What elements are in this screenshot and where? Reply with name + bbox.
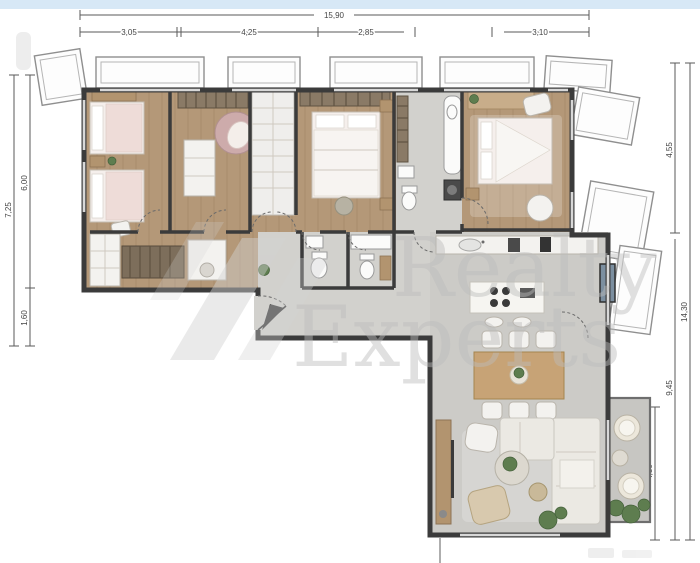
pouf: [335, 197, 353, 215]
plant-icon: [108, 157, 116, 165]
bay-window-icon: [228, 57, 300, 88]
dim-top-seg2-label: 4,25: [241, 28, 257, 37]
watermark-line2: Experts: [292, 288, 621, 386]
shower-tray: [351, 235, 391, 249]
watermark-fragment: [588, 548, 652, 558]
dresser: [184, 140, 215, 196]
dim-left-seg2-label: 1,60: [20, 310, 29, 326]
dimension-left: 7,25 6,00 1,60: [4, 75, 35, 346]
bay-window-icon: [330, 57, 422, 88]
dim-top-seg1-label: 3,05: [121, 28, 137, 37]
dim-right-seg2-label: 9,45: [665, 380, 674, 396]
bay-window-icon: [96, 57, 204, 88]
armchair: [527, 195, 553, 221]
dim-left-total-label: 7,25: [4, 202, 13, 218]
dim-top-total-label: 15,90: [324, 11, 345, 20]
chair: [482, 402, 502, 419]
washer-icon: [444, 180, 461, 200]
nightstand: [380, 100, 393, 112]
dim-right-total-label: 14,30: [680, 301, 689, 322]
plant-icon: [622, 505, 640, 523]
tub-drain: [447, 105, 457, 119]
plant-icon: [470, 95, 479, 104]
plant-icon: [638, 499, 650, 511]
wardrobe-closet: [252, 92, 294, 215]
nightstand: [90, 156, 105, 167]
dimension-top-segments: 3,05 4,25 2,85 3,10: [80, 27, 589, 37]
cabinet: [380, 256, 391, 280]
bay-window-icon: [440, 57, 534, 88]
shelf: [92, 92, 136, 101]
floor-plan-canvas: 15,90 3,05 4,25 2,85 3,10 7,25 6,00 1,60…: [0, 0, 700, 563]
chair: [509, 402, 529, 419]
tv-console: [436, 420, 451, 524]
toilet-icon: [360, 254, 374, 279]
bed-icon: [312, 112, 380, 198]
plant-icon: [503, 457, 517, 471]
armchair: [464, 422, 499, 454]
nightstand: [380, 198, 393, 210]
sink-icon: [306, 236, 323, 248]
bed-icon: [90, 102, 144, 154]
watermark-fragment: [16, 32, 31, 70]
wicker-chair-icon: [614, 415, 640, 441]
plant-icon: [555, 507, 567, 519]
side-table: [612, 450, 628, 466]
wardrobe-icon: [178, 92, 248, 108]
plant-icon: [539, 511, 557, 529]
bed-icon: [90, 170, 144, 222]
chair: [536, 402, 556, 419]
cabinet: [90, 234, 120, 286]
dimension-top-total: 15,90: [80, 10, 589, 20]
stool: [200, 263, 214, 277]
top-accent-bar: [0, 0, 700, 9]
dim-right-seg1-label: 4,55: [665, 142, 674, 158]
dim-top-seg4-label: 3,10: [532, 28, 548, 37]
wicker-chair-icon: [618, 473, 644, 499]
dim-top-seg3-label: 2,85: [358, 28, 374, 37]
wardrobe-icon: [300, 92, 390, 106]
bed-icon: [478, 118, 552, 184]
bay-window-icon: [34, 49, 87, 106]
floor-plan-page: 15,90 3,05 4,25 2,85 3,10 7,25 6,00 1,60…: [0, 0, 700, 563]
sink-icon: [398, 166, 414, 178]
tv-icon: [451, 440, 454, 498]
dim-left-seg1-label: 6,00: [20, 175, 29, 191]
toilet-icon: [402, 186, 417, 210]
cushion: [560, 460, 594, 488]
wardrobe-icon: [397, 96, 408, 162]
side-table: [529, 483, 547, 501]
floor-lamp-icon: [439, 510, 447, 518]
bay-window-icon: [570, 87, 639, 145]
